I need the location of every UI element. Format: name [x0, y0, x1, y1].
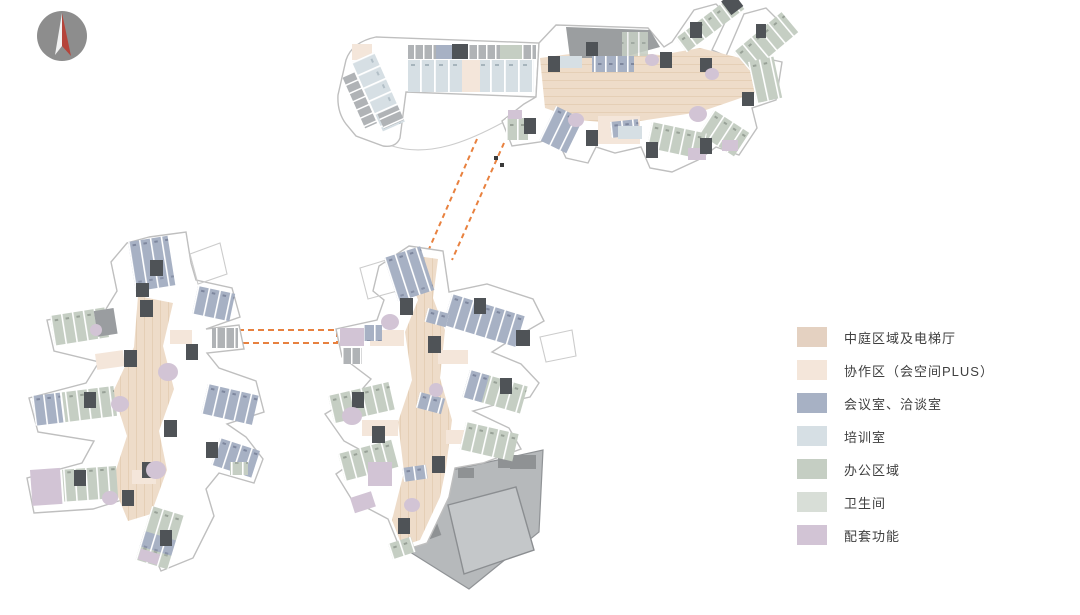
- legend-label: 中庭区域及电梯厅: [844, 328, 956, 347]
- legend-label: 办公区域: [844, 460, 900, 479]
- building-top: [338, 0, 798, 172]
- legend-item-atrium: 中庭区域及电梯厅: [797, 327, 994, 347]
- legend-item-office: 办公区域: [797, 459, 994, 479]
- legend-swatch-restroom: [797, 492, 827, 512]
- legend-label: 卫生间: [844, 493, 886, 512]
- service-core: [212, 328, 238, 348]
- legend-item-restroom: 卫生间: [797, 492, 994, 512]
- office-room: [230, 462, 248, 475]
- training-room: [618, 126, 642, 139]
- legend-label: 培训室: [844, 427, 886, 446]
- legend-item-amenity: 配套功能: [797, 525, 994, 545]
- legend-swatch-office: [797, 459, 827, 479]
- legend-swatch-meeting: [797, 393, 827, 413]
- legend-label: 配套功能: [844, 526, 900, 545]
- legend-label: 会议室、洽谈室: [844, 394, 942, 413]
- terrace: [540, 330, 576, 362]
- legend-swatch-amenity: [797, 525, 827, 545]
- legend-label: 协作区（会空间PLUS）: [844, 361, 994, 380]
- bridge-left-middle: [238, 330, 337, 343]
- building-left: [27, 232, 264, 571]
- service-core: [342, 348, 362, 364]
- training-room: [560, 56, 582, 68]
- north-arrow-icon: [37, 11, 87, 61]
- legend-swatch-collab: [797, 360, 827, 380]
- meeting-rooms: [592, 56, 634, 72]
- legend-item-meeting: 会议室、洽谈室: [797, 393, 994, 413]
- office-room: [500, 45, 522, 59]
- office-room: [388, 537, 416, 560]
- office-rooms: [622, 32, 648, 56]
- legend-swatch-training: [797, 426, 827, 446]
- bridge-marker: [494, 156, 498, 160]
- bridge-top-middle: [426, 139, 504, 260]
- legend: 中庭区域及电梯厅 协作区（会空间PLUS） 会议室、洽谈室 培训室 办公区域 卫…: [797, 327, 994, 558]
- amenity-room: [340, 328, 364, 346]
- floor-plan-page: 中庭区域及电梯厅 协作区（会空间PLUS） 会议室、洽谈室 培训室 办公区域 卫…: [0, 0, 1080, 615]
- legend-swatch-atrium: [797, 327, 827, 347]
- bridge-marker: [500, 163, 504, 167]
- legend-item-collab: 协作区（会空间PLUS）: [797, 360, 994, 380]
- amenity-room: [722, 140, 738, 151]
- collab-area: [462, 60, 480, 92]
- amenity-room: [368, 462, 392, 486]
- legend-item-training: 培训室: [797, 426, 994, 446]
- meeting-room: [364, 325, 382, 341]
- amenity-room: [508, 110, 522, 119]
- building-middle: [325, 246, 576, 589]
